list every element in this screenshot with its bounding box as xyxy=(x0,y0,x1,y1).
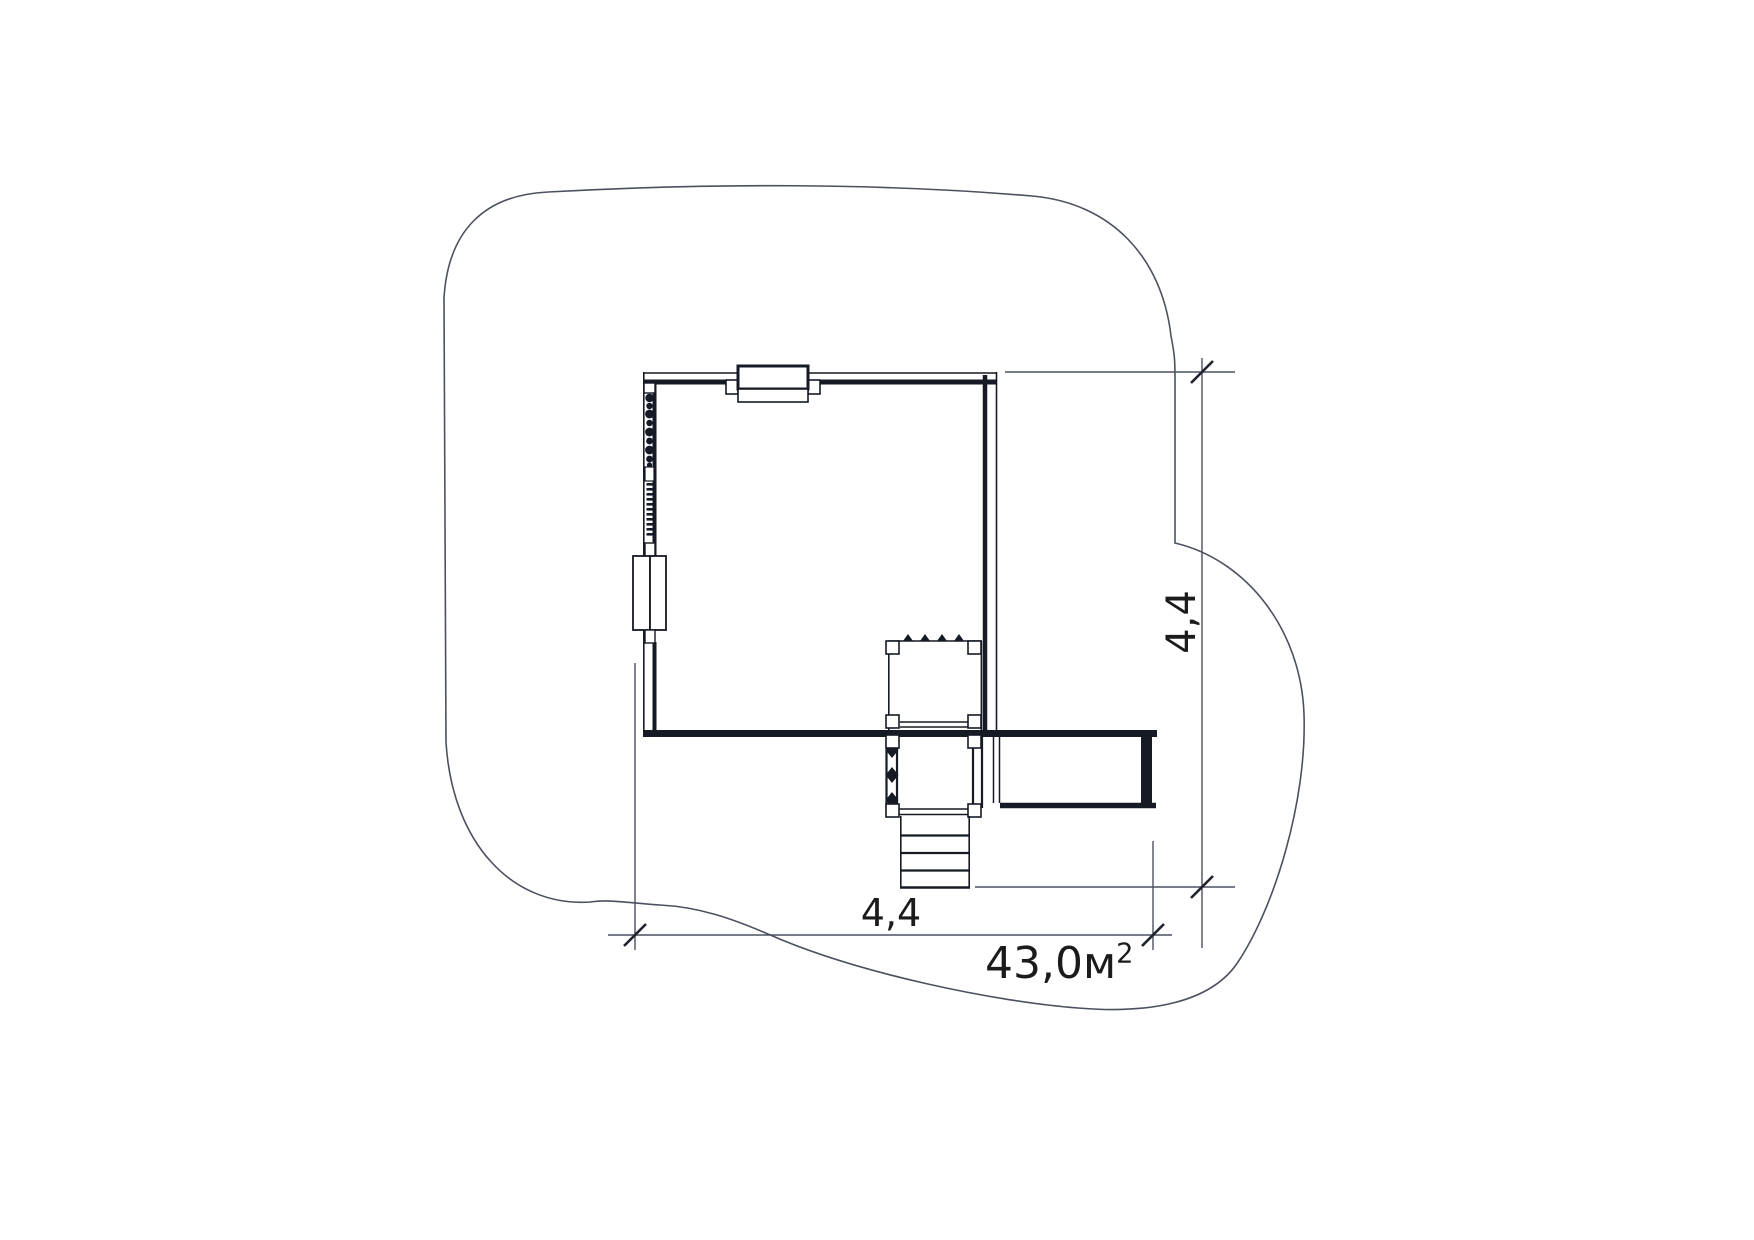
floor-plan-canvas xyxy=(0,0,1754,1240)
floor-plan-sheet: 4,4 4,4 43,0м2 xyxy=(0,0,1754,1240)
stairs xyxy=(900,816,970,888)
window-left xyxy=(633,543,666,643)
area-value: 43,0м xyxy=(985,938,1116,989)
terrace xyxy=(994,734,1158,806)
terrace-end-post xyxy=(1141,734,1152,804)
dimension-lines xyxy=(608,358,1235,950)
dimension-ticks xyxy=(624,361,1213,946)
railing-balusters xyxy=(886,742,899,808)
porch-inner xyxy=(886,634,982,731)
porch-outer xyxy=(886,735,983,817)
vertical-dimension-label: 4,4 xyxy=(1162,576,1208,668)
area-label: 43,0м2 xyxy=(985,942,1134,986)
window-top xyxy=(726,366,820,402)
horizontal-dimension-label: 4,4 xyxy=(843,894,939,932)
area-exponent: 2 xyxy=(1116,938,1133,969)
main-room-walls xyxy=(643,372,997,737)
